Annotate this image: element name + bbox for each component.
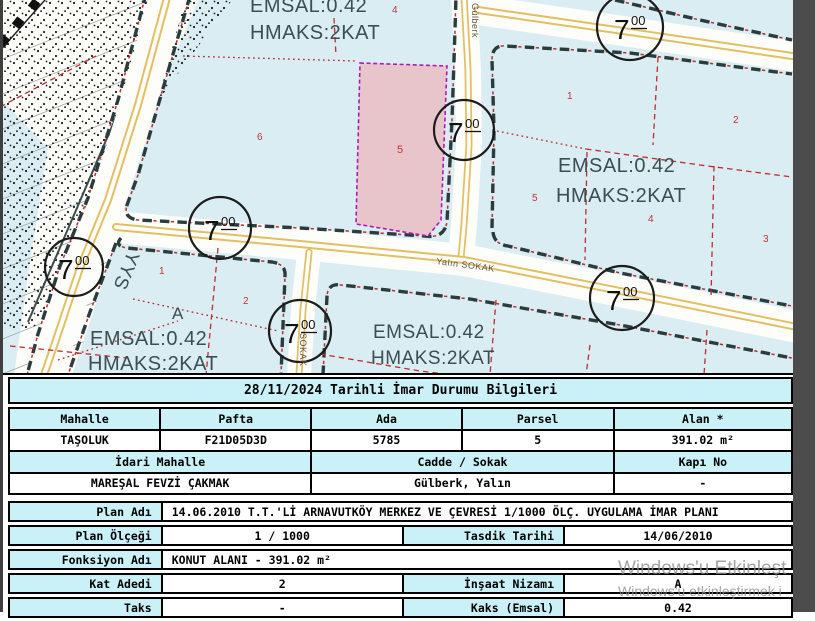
- svg-text:7: 7: [204, 215, 220, 246]
- street-sokak: SOKAK: [298, 333, 308, 367]
- zone-label-right: EMSAL:0.42: [558, 155, 675, 177]
- plan-olcegi-row: Plan Ölçeği 1 / 1000 Tasdik Tarihi 14/06…: [8, 525, 793, 546]
- map-bottom-border: [0, 373, 793, 375]
- value-idari-mahalle: MAREŞAL FEVZİ ÇAKMAK: [10, 474, 310, 494]
- col-header-pafta: Pafta: [161, 409, 310, 429]
- col-header-parsel: Parsel: [463, 409, 613, 429]
- value-pafta: F21D05D3D: [161, 431, 310, 451]
- plan-adi-row: Plan Adı 14.06.2010 T.T.'Lİ ARNAVUTKÖY M…: [8, 501, 793, 522]
- taks-row: Taks - Kaks (Emsal) 0.42: [8, 597, 793, 618]
- value-cadde-sokak: Gülberk, Yalın: [312, 474, 612, 494]
- value-mahalle: TAŞOLUK: [10, 431, 159, 451]
- table-title: 28/11/2024 Tarihli İmar Durumu Bilgileri: [8, 377, 793, 404]
- svg-text:3: 3: [763, 234, 769, 245]
- plan-info-table: Plan Adı 14.06.2010 T.T.'Lİ ARNAVUTKÖY M…: [8, 501, 793, 618]
- svg-text:7: 7: [58, 254, 74, 285]
- label-taks: Taks: [10, 599, 161, 616]
- svg-text:7: 7: [284, 318, 300, 349]
- svg-text:2: 2: [243, 296, 249, 307]
- label-tasdik-tarihi: Tasdik Tarihi: [404, 527, 563, 544]
- window-left-border: [0, 0, 3, 612]
- value-kaks-emsal: 0.42: [565, 599, 791, 616]
- value-plan-olcegi: 1 / 1000: [163, 527, 402, 544]
- zoning-map: 700 700 700 700 700 700 EMSAL:0.42 HMAKS…: [0, 0, 793, 375]
- value-kapi-no: -: [615, 474, 791, 494]
- svg-text:00: 00: [623, 284, 637, 299]
- svg-text:00: 00: [75, 253, 89, 268]
- col-header-cadde-sokak: Cadde / Sokak: [312, 452, 612, 472]
- svg-text:7: 7: [448, 117, 464, 148]
- street-gulberk: Gülberk: [470, 3, 480, 38]
- value-plan-adi: 14.06.2010 T.T.'Lİ ARNAVUTKÖY MERKEZ VE …: [163, 503, 791, 520]
- value-tasdik-tarihi: 14/06/2010: [565, 527, 791, 544]
- col-header-kapi-no: Kapı No: [615, 452, 791, 472]
- svg-text:6: 6: [257, 132, 263, 143]
- nizam-label: A: [172, 304, 184, 323]
- kat-adedi-row: Kat Adedi 2 İnşaat Nizamı A: [8, 573, 793, 594]
- svg-text:7: 7: [606, 285, 622, 316]
- window-right-strip: [793, 0, 815, 612]
- svg-text:5: 5: [532, 193, 538, 204]
- col-header-alan: Alan *: [615, 409, 791, 429]
- col-header-idari-mahalle: İdari Mahalle: [10, 452, 310, 472]
- imar-info-tables: 28/11/2024 Tarihli İmar Durumu Bilgileri…: [8, 377, 793, 621]
- zone-label-left: EMSAL:0.42: [90, 328, 207, 350]
- fonksiyon-row: Fonksiyon Adı KONUT ALANI - 391.02 m²: [8, 549, 793, 570]
- svg-text:HMAKS:2KAT: HMAKS:2KAT: [556, 185, 686, 207]
- label-plan-olcegi: Plan Ölçeği: [10, 527, 161, 544]
- svg-text:4: 4: [392, 5, 398, 16]
- value-fonksiyon-adi: KONUT ALANI - 391.02 m²: [163, 551, 791, 568]
- svg-text:00: 00: [301, 317, 315, 332]
- label-plan-adi: Plan Adı: [10, 503, 161, 520]
- svg-text:HMAKS:2KAT: HMAKS:2KAT: [371, 348, 495, 369]
- zone-label-center: EMSAL:0.42: [373, 322, 485, 343]
- svg-text:1: 1: [159, 266, 165, 277]
- svg-text:00: 00: [221, 214, 235, 229]
- imar-durumu-screen: { "map": { "zoning": { "emsal": "EMSAL:0…: [0, 0, 815, 612]
- label-fonksiyon-adi: Fonksiyon Adı: [10, 551, 161, 568]
- zoning-map-viewport[interactable]: 700 700 700 700 700 700 EMSAL:0.42 HMAKS…: [0, 0, 793, 375]
- col-header-ada: Ada: [312, 409, 460, 429]
- value-alan: 391.02 m²: [615, 431, 791, 451]
- zone-label-top: EMSAL:0.42: [250, 0, 367, 17]
- label-kat-adedi: Kat Adedi: [10, 575, 161, 592]
- parcel-info-table: Mahalle Pafta Ada Parsel Alan * TAŞOLUK …: [8, 407, 793, 495]
- label-kaks-emsal: Kaks (Emsal): [404, 599, 563, 616]
- label-insaat-nizami: İnşaat Nizamı: [404, 575, 563, 592]
- svg-text:HMAKS:2KAT: HMAKS:2KAT: [250, 22, 380, 44]
- svg-text:HMAKS:2KAT: HMAKS:2KAT: [88, 353, 218, 375]
- subject-parcel-number: 5: [397, 144, 403, 156]
- svg-text:2: 2: [733, 115, 739, 126]
- value-taks: -: [163, 599, 402, 616]
- svg-text:00: 00: [631, 13, 645, 28]
- value-ada: 5785: [312, 431, 460, 451]
- value-kat-adedi: 2: [163, 575, 402, 592]
- col-header-mahalle: Mahalle: [10, 409, 159, 429]
- value-parsel: 5: [463, 431, 613, 451]
- value-insaat-nizami: A: [565, 575, 791, 592]
- svg-text:4: 4: [648, 214, 654, 225]
- svg-text:00: 00: [465, 116, 479, 131]
- svg-text:7: 7: [614, 14, 630, 45]
- table-title-text: 28/11/2024 Tarihli İmar Durumu Bilgileri: [244, 383, 557, 398]
- svg-text:1: 1: [567, 91, 573, 102]
